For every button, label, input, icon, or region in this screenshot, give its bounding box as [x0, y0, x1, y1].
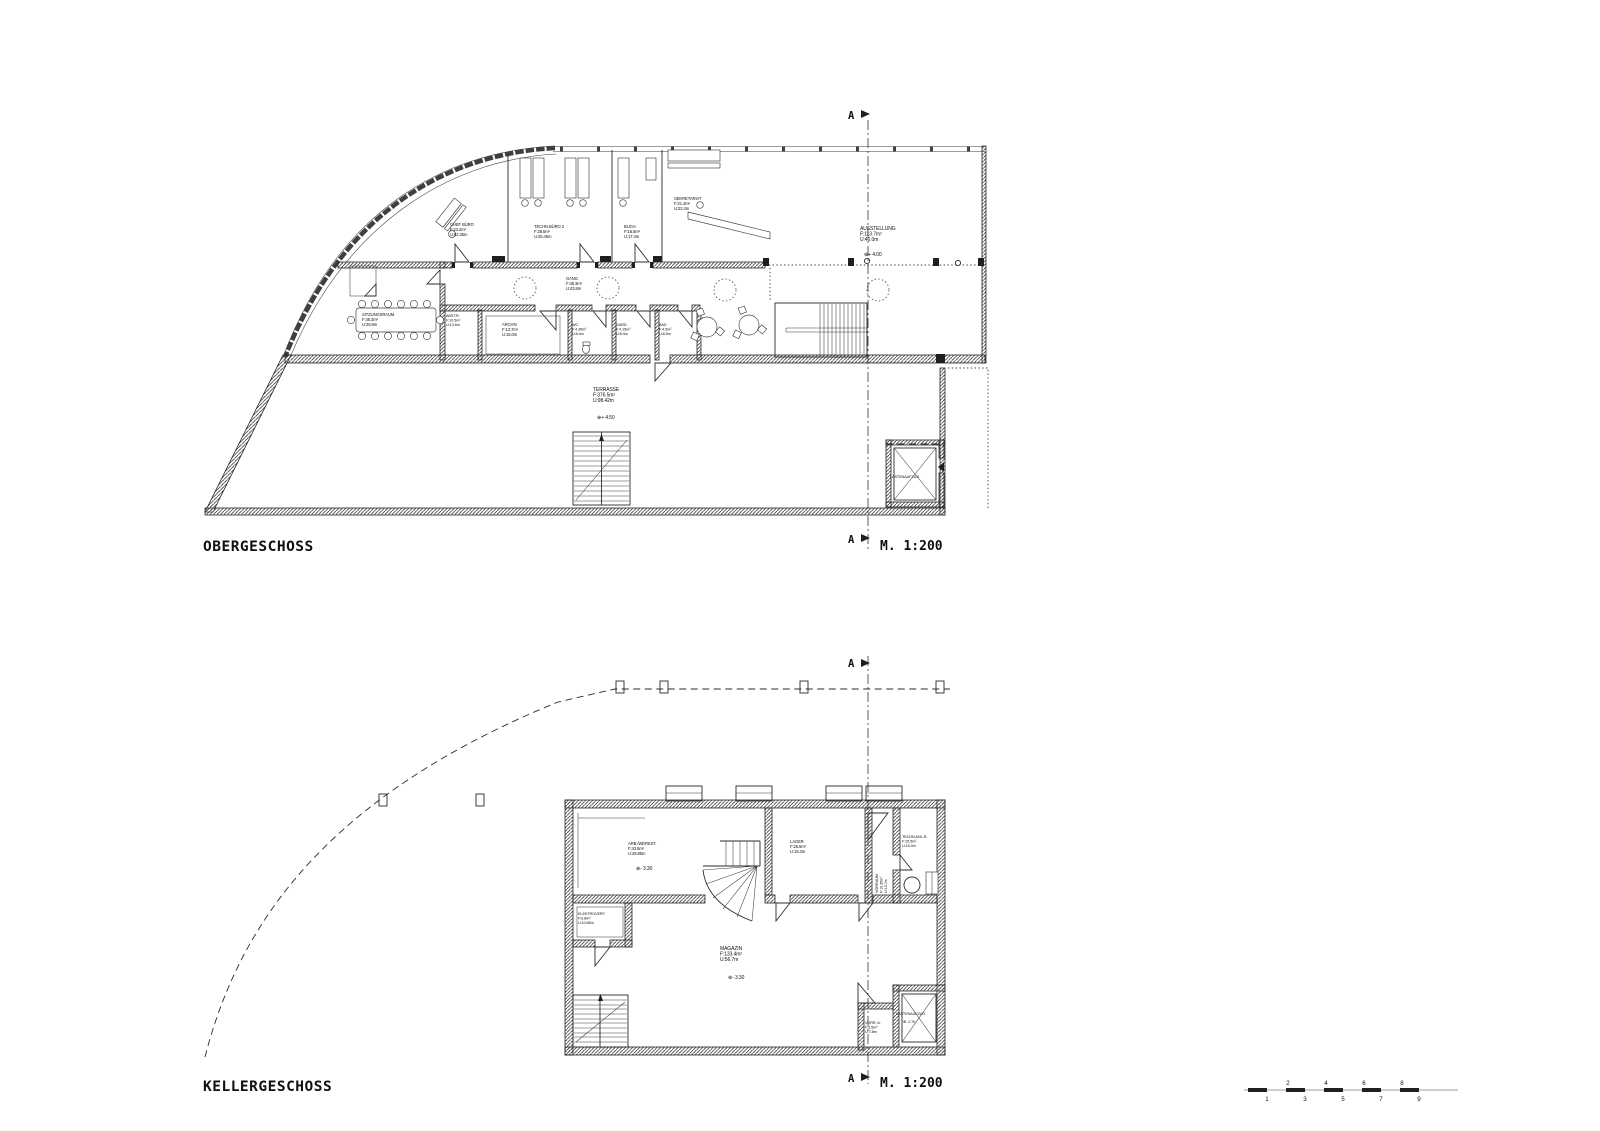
scale-number-above: 6 — [1362, 1080, 1366, 1087]
room-level: ⊕- 3.30 — [636, 866, 653, 872]
archiv-door-swing — [540, 311, 556, 330]
room-label-lift-upper: LASTENAUFZUG — [890, 475, 919, 479]
section-arrow-bottom-icon — [861, 534, 870, 542]
office-front-wall-1 — [338, 262, 452, 268]
wc-cistern — [583, 342, 590, 346]
partition-vorraum-techn-a — [893, 808, 900, 855]
round-table-2 — [733, 306, 767, 339]
elektro-south-wall-b — [610, 940, 632, 947]
basement-west-wall — [565, 800, 573, 1055]
room-level: ⊕+ 4.50 — [597, 415, 615, 421]
bad-door-swing — [679, 311, 692, 327]
room-name: ABST.R. — [446, 314, 460, 318]
room-name: GARD. — [616, 323, 628, 327]
room-area: F:4.5m² — [659, 328, 672, 332]
magazin-door-swing-2 — [859, 903, 873, 921]
interior-wall-1 — [573, 895, 705, 903]
room-area: F:10.35m² — [880, 876, 884, 893]
room-perimeter: U:43.8m — [566, 286, 582, 291]
office-front-wall-4 — [653, 262, 765, 268]
scale-number-below: 5 — [1341, 1096, 1345, 1103]
elektro-south-wall-a — [573, 940, 595, 947]
section-arrow-bottom-icon — [861, 1073, 870, 1081]
vorr-a-west-wall — [858, 1003, 864, 1050]
magazin-door-swing-1 — [776, 903, 790, 921]
room-label-buch: BUCH. F:16.5m² U:17.4m — [624, 224, 641, 239]
room-name: TECHN.ANL.R. — [902, 835, 927, 839]
room-name: WC — [572, 323, 578, 327]
partition-lager-vorraum — [865, 808, 872, 903]
office-front-wall-3 — [598, 262, 632, 268]
scale-number-above: 8 — [1400, 1080, 1404, 1087]
room-label-gang: GANG F:48.3m² U:43.8m — [566, 276, 583, 291]
room-perimeter: U:13.7m — [884, 879, 888, 893]
entry-vestibule — [350, 266, 376, 296]
basement-east-wall — [937, 800, 945, 1055]
buch-office-desk — [618, 158, 656, 206]
room-name: ELEKTROVERT. — [578, 912, 605, 916]
wardrobe-blocks — [492, 256, 662, 262]
chef-door-swing — [455, 244, 469, 262]
room-perimeter: U:29.8m — [362, 322, 378, 327]
room-perimeter: U:98.42m — [593, 398, 614, 404]
skylight-1 — [514, 277, 536, 299]
lower-floor-plan: LASTENAUFZUG ⊕- 2.70 A A ARB./WERKST. F:… — [203, 656, 950, 1095]
scale-number-below: 3 — [1303, 1096, 1307, 1103]
room-name: VORRAUM — [875, 874, 879, 893]
room-label-wc: WC F:4.35m² U:8.4m — [572, 323, 587, 336]
skylight-4 — [867, 279, 889, 301]
partition-arb-lager — [765, 808, 772, 895]
room-perimeter: U:8.5m — [659, 332, 671, 336]
south-wall-left — [285, 355, 650, 363]
room-label-magazin: MAGAZIN F:133.4m² U:56.7m ⊕- 3.30 — [720, 946, 745, 981]
east-wall — [982, 146, 986, 363]
terrace-west-wall — [205, 355, 291, 512]
room-label-techn-lower: TECHN.ANL.R. F:15.5m² U:15.4m — [902, 835, 927, 848]
room-label-chef: CHEF BÜRO F:23.2m² U:52.35m — [450, 222, 475, 237]
room-label-arb: ARB./WERKST. F:43.5m² U:28.85m ⊕- 3.30 — [628, 841, 656, 872]
room-label-terrasse: TERRASSE F:376.5m² U:98.42m ⊕+ 4.50 — [593, 387, 620, 421]
small-rooms-wall-3 — [606, 305, 636, 311]
freight-elevator-upper: LASTENAUFZUG — [886, 440, 944, 507]
round-table-1 — [691, 308, 725, 341]
room-label-techn: TECHN.BÜRO 2 F:28.5m² U:25.45m — [534, 224, 565, 239]
room-label-vorr-a: VORR. A. F:5.5m² U:7.8m — [865, 1021, 881, 1034]
lower-plan-title: KELLERGESCHOSS — [203, 1079, 332, 1095]
terrace-door-swing — [655, 363, 671, 381]
stair-direction-arrow — [599, 434, 604, 441]
footprint-dashed-outline — [205, 689, 950, 1057]
section-marker-bottom-label: A — [848, 1073, 855, 1085]
scale-number-below: 7 — [1379, 1096, 1383, 1103]
section-arrow-top-icon — [861, 110, 870, 118]
interior-wall-4 — [873, 895, 937, 903]
room-area: F:6.8m² — [578, 917, 591, 921]
scale-number-below: 1 — [1265, 1096, 1269, 1103]
stair-treads — [820, 304, 864, 356]
room-area: F:4.15m² — [616, 328, 631, 332]
floor-plan-drawing: LASTENAUFZUG A A CHEF BÜRO F:23.2m² U:52… — [0, 0, 1600, 1131]
room-perimeter: U:17.4m — [624, 234, 640, 239]
section-marker-top-label: A — [848, 110, 855, 122]
room-perimeter: U:56.7m — [720, 957, 738, 963]
upper-plan-title: OBERGESCHOSS — [203, 539, 314, 555]
room-label-vorraum: VORRAUM F:10.35m² U:13.7m — [875, 874, 888, 893]
room-perimeter: U:28.85m — [628, 851, 646, 856]
room-area: F:4.35m² — [572, 328, 587, 332]
column-circle-2 — [955, 260, 960, 265]
room-perimeter: U:46.0m — [860, 237, 878, 243]
scale-number-above: 2 — [1286, 1080, 1290, 1087]
room-area: F:10.5m² — [446, 319, 461, 323]
room-label-lift-lower: LASTENAUFZUG — [896, 1012, 925, 1016]
room-perimeter: U:19.3m — [790, 849, 806, 854]
vestibule-door-swing — [365, 284, 376, 296]
techn-door-swing — [580, 244, 594, 262]
column-circle-1 — [864, 258, 869, 263]
room-area: F:15.5m² — [902, 840, 917, 844]
terrace-boundary-dotted — [948, 368, 988, 508]
room-perimeter: U:52.35m — [450, 232, 468, 237]
room-level: ⊕+ 4.00 — [864, 252, 882, 258]
room-label-bad: BAD F:4.5m² U:8.5m — [659, 323, 672, 336]
wc-door-swing — [593, 311, 606, 327]
drawing-sheet: LASTENAUFZUG A A CHEF BÜRO F:23.2m² U:52… — [0, 0, 1600, 1131]
room-area: F:5.5m² — [865, 1026, 878, 1030]
elevator-cross — [894, 448, 936, 500]
upper-plan-scale: M. 1:200 — [880, 539, 943, 554]
column-markers — [379, 681, 944, 806]
techn-door-swing — [900, 855, 912, 870]
skylight-3 — [714, 279, 736, 301]
boiler-circle — [904, 877, 920, 893]
scale-number-below: 9 — [1417, 1096, 1421, 1103]
room-level: ⊕- 3.30 — [728, 975, 745, 981]
room-perimeter: U:10.65m — [578, 921, 594, 925]
small-rooms-wall-1 — [440, 305, 535, 311]
vorr-a-north-wall — [858, 1003, 893, 1009]
room-label-abst: ABST.R. F:10.5m² U:13.6m — [446, 314, 461, 327]
terrace-stairs — [573, 432, 630, 505]
section-arrow-top-icon — [861, 659, 870, 667]
stair-handrail — [786, 328, 867, 332]
room-name: VORR. A. — [865, 1021, 881, 1025]
room-perimeter: U:15.0m — [502, 332, 518, 337]
terrace-south-wall — [205, 508, 945, 515]
small-rooms-wall-4 — [650, 305, 678, 311]
room-name: BAD — [659, 323, 667, 327]
room-label-elektro: ELEKTROVERT. F:6.8m² U:10.65m — [578, 912, 605, 925]
section-marker-top-label: A — [848, 658, 855, 670]
room-perimeter: U:8.4m — [616, 332, 628, 336]
sitzungsraum-wall-top — [440, 262, 445, 268]
room-perimeter: U:7.8m — [865, 1030, 877, 1034]
basement-stairs — [573, 994, 628, 1047]
small-rooms-wall-2 — [556, 305, 592, 311]
room-perimeter: U:13.6m — [446, 323, 460, 327]
techn-office-desks — [520, 158, 589, 206]
room-perimeter: U:8.4m — [572, 332, 584, 336]
vorr-a-door-swing — [858, 983, 875, 1003]
partition-abst-archiv — [478, 310, 482, 360]
room-label-gard: GARD. F:4.15m² U:8.4m — [616, 323, 631, 336]
room-perimeter: U:22.4m — [674, 206, 690, 211]
room-perimeter: U:25.45m — [534, 234, 552, 239]
elektro-door-swing — [595, 947, 610, 966]
wc-toilet — [583, 345, 590, 354]
north-wall-lines — [553, 147, 985, 152]
main-stairs — [775, 303, 867, 357]
office-front-wall-2 — [473, 262, 577, 268]
partition-vorraum-techn-b — [893, 870, 900, 903]
room-level-lift-lower: ⊕- 2.70 — [903, 1020, 915, 1024]
room-perimeter: U:15.4m — [902, 844, 916, 848]
winder-stairs — [703, 841, 760, 921]
room-label-ausstellung: AUSSTELLUNG F:113.7m² U:46.0m ⊕+ 4.00 — [860, 226, 896, 258]
skylight-2 — [597, 277, 619, 299]
gard-door-swing — [637, 311, 650, 327]
room-label-lager: LAGER F:25.5m² U:19.3m — [790, 839, 807, 854]
elevator-cross — [902, 994, 936, 1042]
room-label-archiv: ARCHIV F:13.7m² U:15.0m — [502, 322, 519, 337]
lower-plan-scale: M. 1:200 — [880, 1076, 943, 1091]
scale-bar: 2 4 6 8 1 3 5 7 9 — [1244, 1080, 1458, 1103]
scale-number-above: 4 — [1324, 1080, 1328, 1087]
upper-floor-plan: LASTENAUFZUG A A CHEF BÜRO F:23.2m² U:52… — [203, 110, 988, 555]
sitzungsraum-door-swing — [427, 270, 440, 284]
section-marker-bottom-label: A — [848, 534, 855, 546]
interior-wall-3 — [790, 895, 858, 903]
interior-wall-2 — [765, 895, 775, 903]
sekretariat-desks — [668, 150, 770, 239]
lightwell-protrusions — [666, 786, 902, 801]
buch-door-swing — [635, 244, 649, 262]
basement-south-wall — [565, 1047, 945, 1055]
wall-junction-block — [936, 354, 945, 363]
